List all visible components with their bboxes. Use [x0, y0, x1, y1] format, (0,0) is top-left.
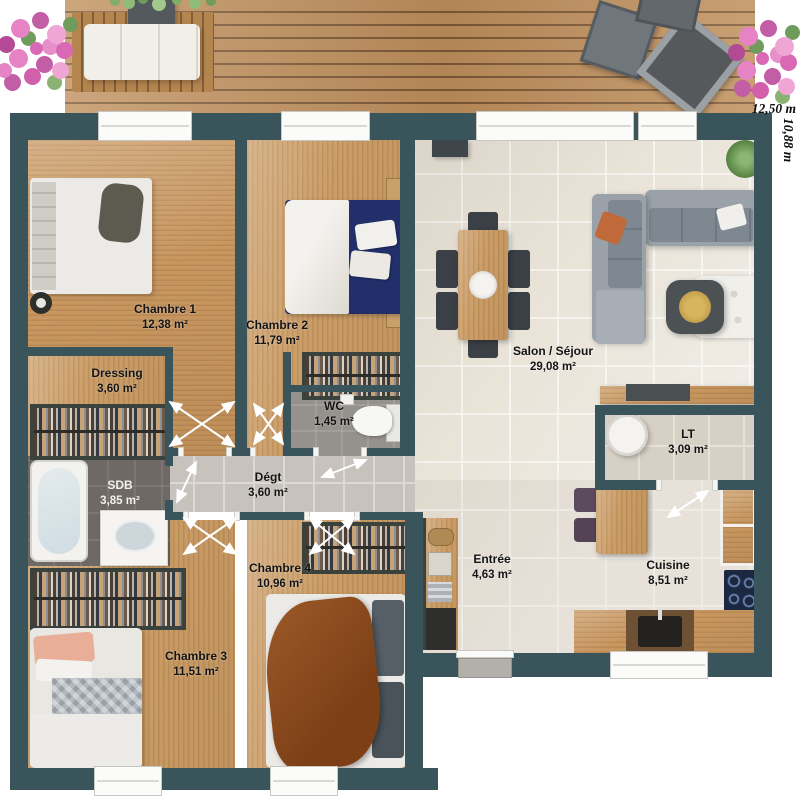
bedside-stool-top: [36, 298, 46, 308]
room-label-sdb: SDB 3,85 m²: [50, 478, 190, 509]
sideboard-object: [626, 384, 690, 401]
room-area: 3,60 m²: [47, 382, 187, 397]
room-name: Salon / Séjour: [468, 344, 638, 360]
room-area: 3,60 m²: [198, 486, 338, 501]
room-label-chambre-3: Chambre 3 11,51 m²: [126, 649, 266, 680]
bed-duvet-white: [285, 200, 349, 314]
room-name: Chambre 1: [95, 302, 235, 318]
room-label-degt: Dégt 3,60 m²: [198, 470, 338, 501]
wall: [754, 113, 772, 677]
room-area: 29,08 m²: [468, 360, 638, 375]
sun-lounger: [84, 24, 200, 80]
wall: [358, 512, 405, 520]
wall: [10, 113, 28, 790]
kitchen-sink: [638, 616, 682, 647]
door-jamb: [304, 511, 310, 521]
closet-cabinet: [426, 608, 456, 650]
wall: [285, 448, 315, 456]
door-jamb: [361, 447, 367, 457]
door-jamb: [656, 479, 662, 491]
window-chambre-3: [94, 766, 162, 796]
room-name: Dégt: [198, 470, 338, 486]
wall: [230, 448, 252, 456]
wall: [28, 347, 165, 356]
dining-chair: [436, 250, 458, 288]
room-name: Chambre 2: [207, 318, 347, 334]
room-area: 3,09 m²: [628, 443, 748, 458]
wall: [165, 347, 173, 456]
tv-console: [432, 140, 468, 157]
room-area: 1,45 m²: [284, 415, 384, 430]
room-name: Cuisine: [598, 558, 738, 574]
wall: [595, 405, 605, 488]
door-jamb: [250, 447, 256, 457]
wall: [405, 512, 423, 790]
room-name: LT: [628, 427, 748, 443]
dining-chair: [468, 212, 498, 232]
wall: [10, 768, 438, 790]
coffee-table-tray: [679, 291, 711, 323]
kitchen-cabinet-shelf: [720, 524, 756, 527]
dining-chair: [508, 292, 530, 330]
dining-chair: [508, 250, 530, 288]
door-jamb: [183, 511, 189, 521]
room-name: Dressing: [47, 366, 187, 382]
room-area: 11,79 m²: [207, 334, 347, 349]
room-area: 10,96 m²: [210, 577, 350, 592]
door-jamb: [354, 511, 360, 521]
bed-pillow-gray: [372, 600, 404, 676]
bed-duvet: [30, 714, 142, 768]
faucet: [658, 610, 662, 620]
dimension-height: 10,88 m: [780, 118, 796, 162]
dining-chair: [436, 292, 458, 330]
bed-pillow: [354, 219, 397, 250]
door-jamb: [712, 479, 718, 491]
room-name: WC: [284, 399, 384, 415]
wall: [400, 140, 415, 456]
wall: [283, 385, 400, 392]
sofa-chaise: [596, 290, 644, 344]
window-chambre-2: [281, 111, 370, 141]
wall: [165, 456, 173, 466]
room-name: Chambre 4: [210, 561, 350, 577]
door-jamb: [178, 447, 184, 457]
bed-blanket-checkered: [52, 678, 142, 718]
wall: [238, 512, 308, 520]
closet-towels: [428, 582, 452, 602]
room-area: 11,51 m²: [126, 665, 266, 680]
table-centerpiece: [469, 271, 497, 299]
room-area: 8,51 m²: [598, 574, 738, 589]
bed-blanket-brown: [260, 595, 387, 774]
window-chambre-4: [270, 766, 338, 796]
door-jamb: [313, 447, 319, 457]
room-area: 3,85 m²: [50, 494, 190, 509]
door-jamb: [226, 447, 232, 457]
room-label-entree: Entrée 4,63 m²: [422, 552, 562, 583]
bed-blanket-roll: [97, 182, 145, 244]
flower-pot-left: [30, 42, 43, 55]
floor-plan: Chambre 1 12,38 m² Chambre 2 11,79 m² Dr…: [0, 0, 800, 800]
room-label-chambre-4: Chambre 4 10,96 m²: [210, 561, 350, 592]
front-door: [456, 650, 514, 658]
room-label-wc: WC 1,45 m²: [284, 399, 384, 430]
sink-basin: [114, 520, 156, 552]
room-label-cuisine: Cuisine 8,51 m²: [598, 558, 738, 589]
wall: [716, 480, 754, 490]
wall: [235, 140, 247, 456]
room-name: Entrée: [422, 552, 562, 568]
window-salon-bay: [476, 111, 634, 141]
room-label-dressing: Dressing 3,60 m²: [47, 366, 187, 397]
kitchen-table: [596, 486, 648, 554]
bed-pillow: [349, 250, 391, 280]
window-cuisine: [610, 651, 708, 679]
room-label-lt: LT 3,09 m²: [628, 427, 748, 458]
window-salon: [638, 111, 697, 141]
bed-pillows: [32, 182, 56, 290]
door-jamb: [234, 511, 240, 521]
wardrobe-chambre-3: [30, 568, 186, 630]
wall: [595, 405, 754, 415]
wardrobe-dressing: [30, 404, 173, 460]
room-name: SDB: [50, 478, 190, 494]
room-name: Chambre 3: [126, 649, 266, 665]
room-area: 4,63 m²: [422, 568, 562, 583]
room-label-chambre-2: Chambre 2 11,79 m²: [207, 318, 347, 349]
wall: [365, 448, 405, 456]
closet-basket: [428, 528, 454, 546]
wall: [595, 480, 660, 490]
window-chambre-1: [98, 111, 192, 141]
door-mat: [458, 658, 512, 678]
room-label-salon-sejour: Salon / Séjour 29,08 m²: [468, 344, 638, 375]
flower-pot-right: [756, 52, 769, 65]
dimension-width: 12,50 m: [718, 101, 796, 117]
wardrobe-chambre-2: [302, 352, 408, 400]
